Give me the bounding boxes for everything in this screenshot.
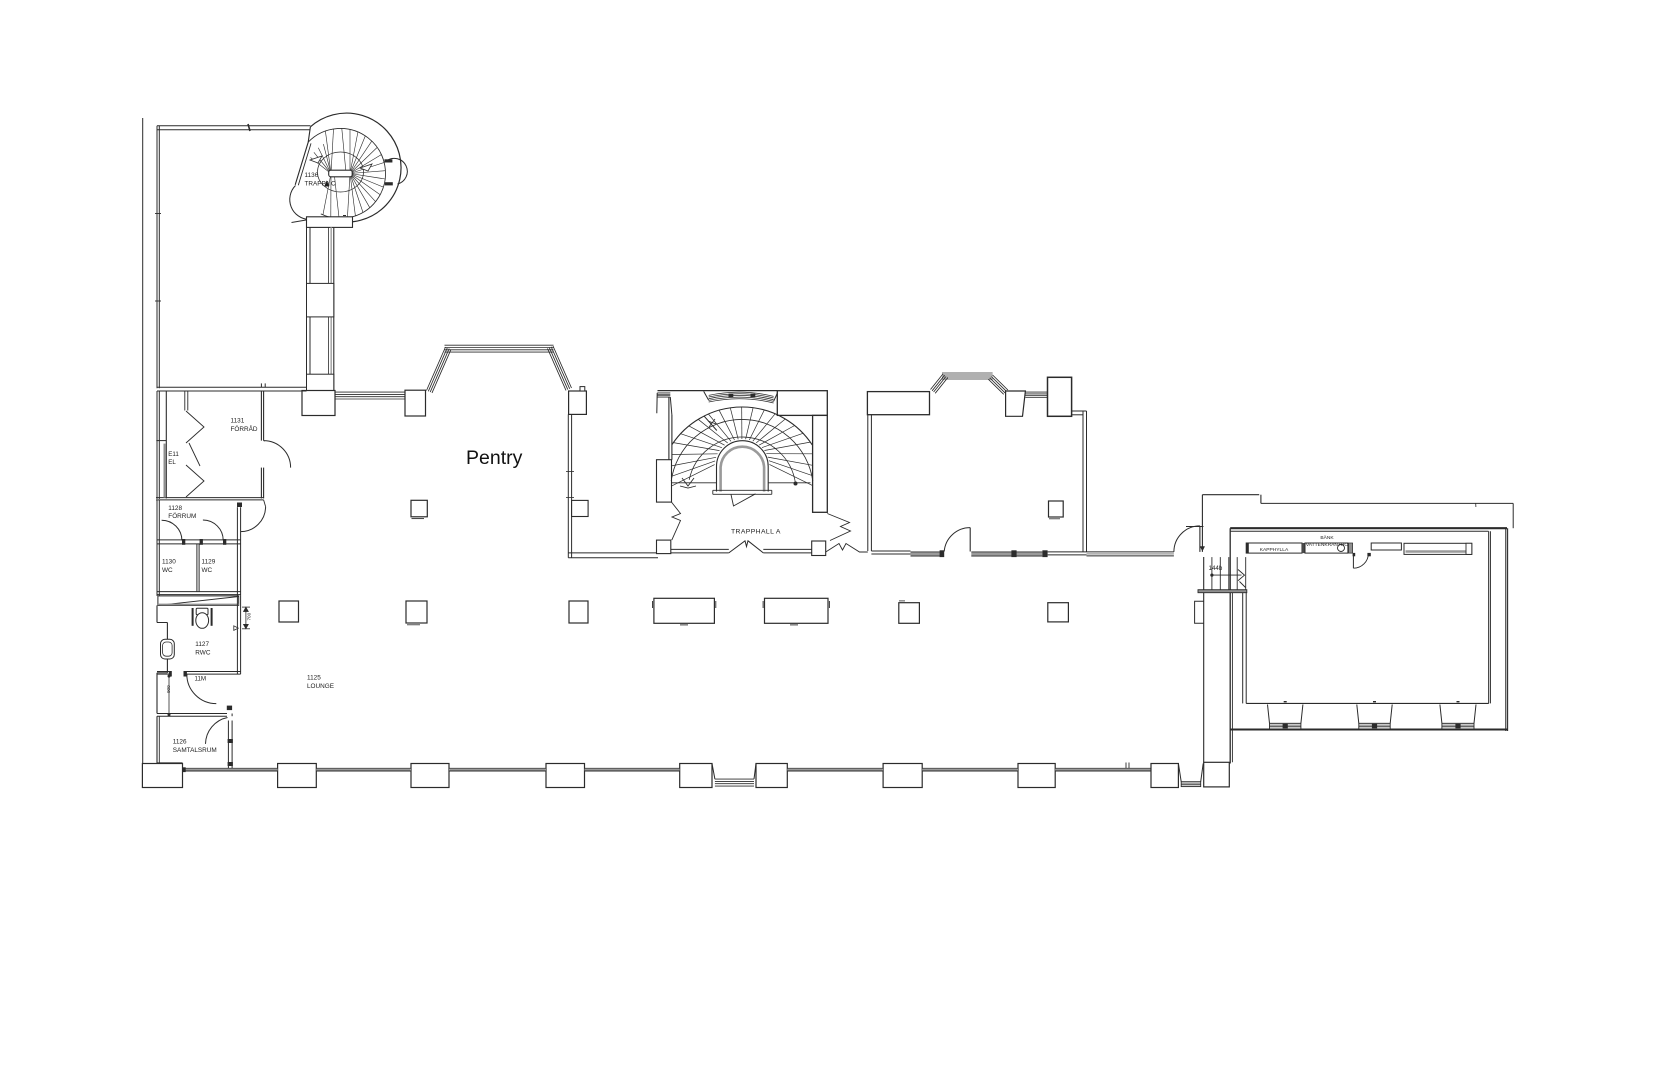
svg-text:RWC: RWC bbox=[195, 650, 211, 657]
svg-text:1131: 1131 bbox=[231, 418, 245, 425]
svg-text:WC: WC bbox=[202, 567, 213, 574]
svg-text:TRAPPA C: TRAPPA C bbox=[305, 181, 337, 188]
svg-text:900: 900 bbox=[166, 685, 171, 693]
svg-text:1129: 1129 bbox=[202, 559, 216, 566]
svg-text:144b: 144b bbox=[1209, 565, 1223, 572]
svg-text:Pentry: Pentry bbox=[466, 447, 523, 469]
svg-text:1128: 1128 bbox=[168, 505, 182, 512]
svg-text:EL: EL bbox=[168, 459, 176, 466]
svg-text:700: 700 bbox=[247, 612, 252, 620]
svg-text:1126: 1126 bbox=[173, 739, 187, 746]
svg-text:FÖRRÅD: FÖRRÅD bbox=[231, 424, 258, 433]
svg-text:VATTENKRAN+HO: VATTENKRAN+HO bbox=[1306, 542, 1349, 548]
svg-text:1136: 1136 bbox=[305, 172, 319, 179]
svg-text:FÖRRUM: FÖRRUM bbox=[168, 512, 196, 520]
svg-text:BÄNK: BÄNK bbox=[1320, 534, 1334, 541]
svg-text:SAMTALSRUM: SAMTALSRUM bbox=[173, 747, 217, 754]
svg-text:KAPPHYLLA: KAPPHYLLA bbox=[1260, 547, 1289, 553]
svg-text:1127: 1127 bbox=[195, 641, 209, 648]
svg-text:LOUNGE: LOUNGE bbox=[307, 683, 334, 690]
svg-text:E11: E11 bbox=[168, 451, 179, 458]
svg-text:WC: WC bbox=[162, 567, 173, 574]
svg-text:1125: 1125 bbox=[307, 675, 321, 682]
svg-text:1130: 1130 bbox=[162, 559, 176, 566]
svg-text:TRAPPHALL A: TRAPPHALL A bbox=[731, 529, 781, 536]
svg-text:11M: 11M bbox=[195, 676, 207, 683]
